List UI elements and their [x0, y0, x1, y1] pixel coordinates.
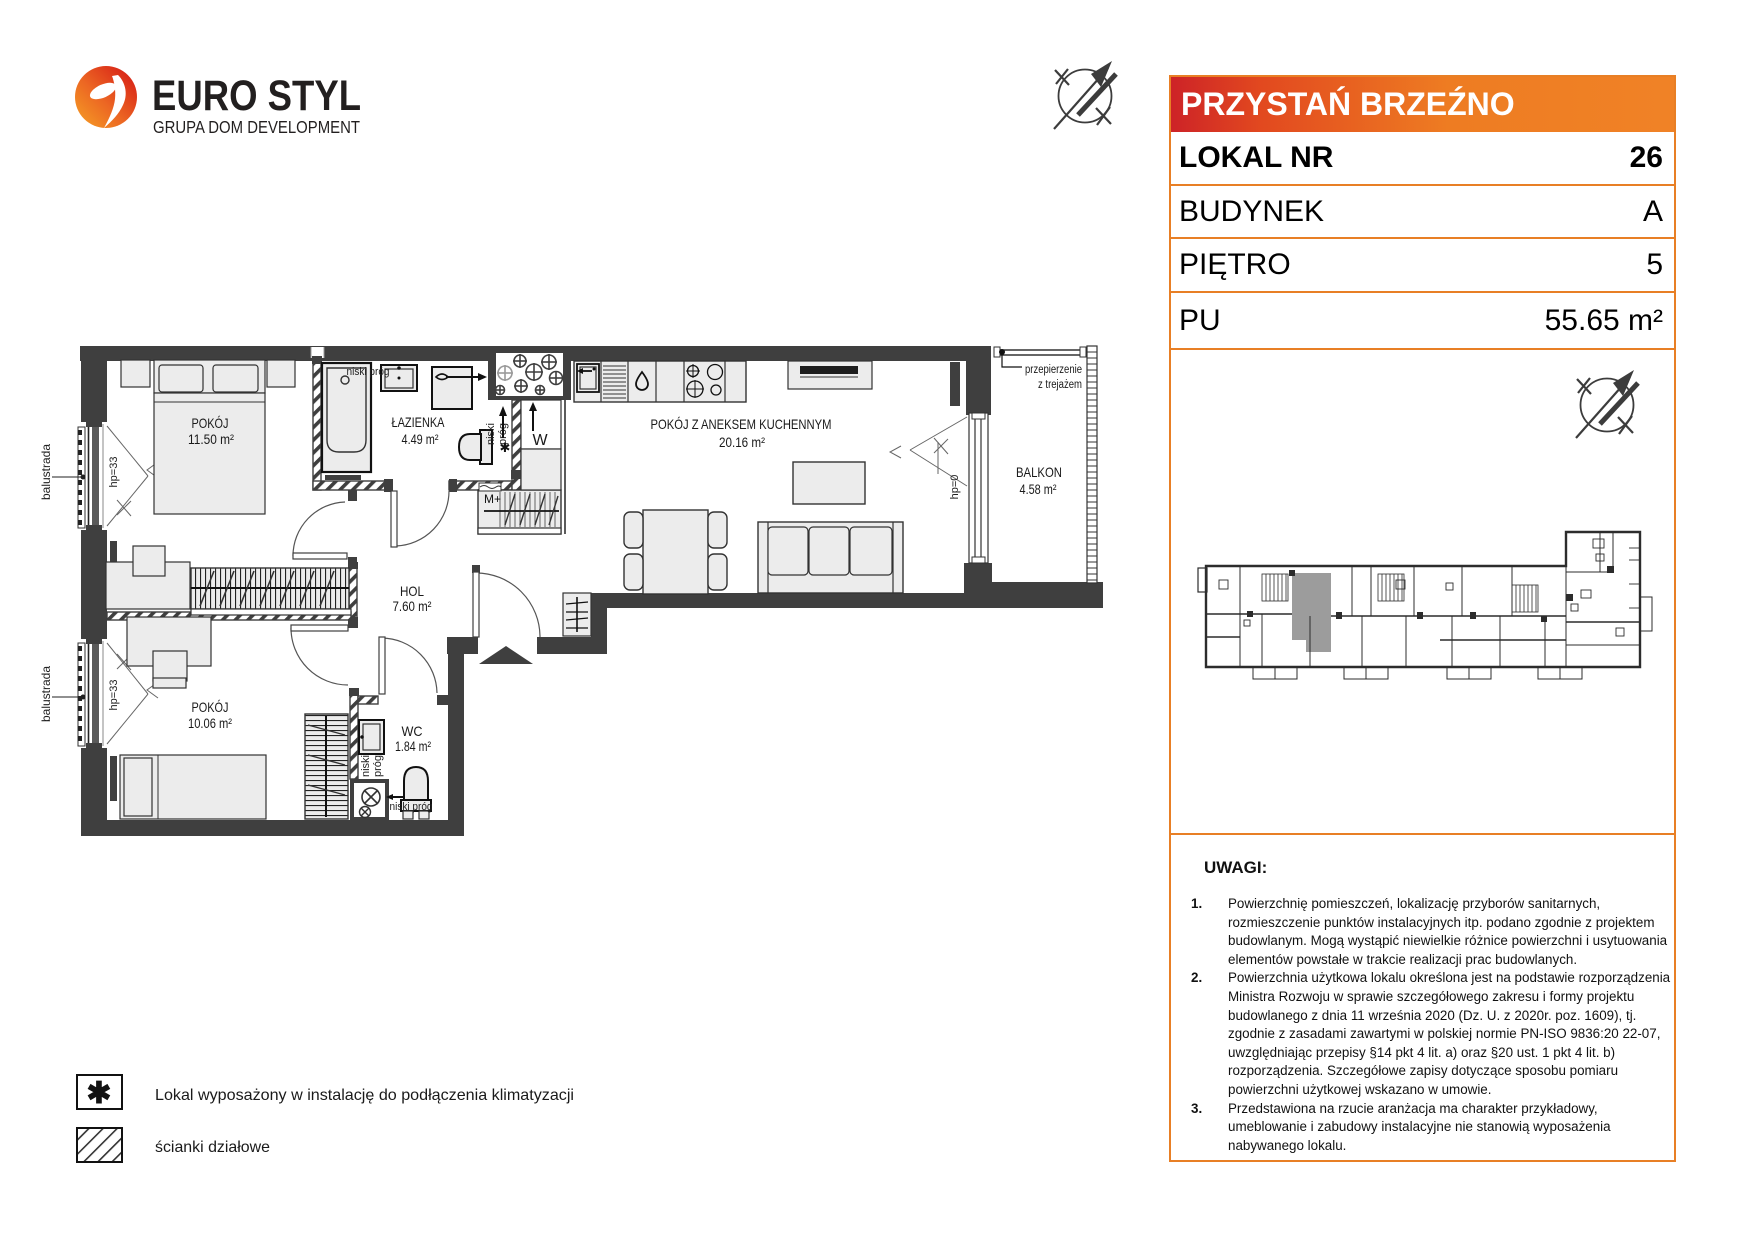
svg-text:7.60 m²: 7.60 m²: [393, 598, 432, 614]
svg-text:z trejażem: z trejażem: [1038, 379, 1082, 391]
svg-text:HOL: HOL: [400, 583, 424, 599]
svg-text:BALKON: BALKON: [1016, 464, 1062, 480]
svg-text:niski: niski: [485, 423, 497, 445]
svg-text:W: W: [532, 432, 548, 449]
svg-text:10.06 m²: 10.06 m²: [188, 715, 232, 731]
svg-text:POKÓJ: POKÓJ: [192, 699, 229, 715]
svg-text:hp=33: hp=33: [108, 457, 120, 488]
svg-text:4.58 m²: 4.58 m²: [1020, 481, 1057, 497]
svg-text:hp=0: hp=0: [949, 475, 961, 500]
svg-text:Lokal wyposażony w instalację: Lokal wyposażony w instalację do podłącz…: [155, 1087, 574, 1104]
svg-text:ŁAZIENKA: ŁAZIENKA: [392, 414, 446, 430]
svg-text:próg: próg: [372, 755, 384, 777]
svg-text:4.49 m²: 4.49 m²: [402, 431, 439, 447]
svg-text:1.84 m²: 1.84 m²: [395, 738, 431, 754]
svg-text:niski: niski: [360, 755, 372, 777]
svg-text:ścianki działowe: ścianki działowe: [155, 1139, 270, 1156]
svg-text:balustrada: balustrada: [39, 666, 53, 722]
svg-text:hp=33: hp=33: [108, 680, 120, 711]
svg-text:20.16 m²: 20.16 m²: [719, 434, 765, 450]
svg-text:przepierzenie: przepierzenie: [1025, 364, 1082, 376]
svg-text:niski próg: niski próg: [390, 801, 433, 813]
svg-text:niski próg: niski próg: [347, 366, 390, 378]
svg-text:✱: ✱: [86, 1077, 111, 1110]
svg-text:✱: ✱: [500, 440, 511, 455]
svg-text:POKÓJ: POKÓJ: [192, 415, 229, 431]
svg-text:balustrada: balustrada: [39, 444, 53, 500]
svg-text:WC: WC: [402, 723, 423, 739]
svg-text:M+: M+: [484, 492, 501, 506]
svg-text:POKÓJ Z ANEKSEM KUCHENNYM: POKÓJ Z ANEKSEM KUCHENNYM: [651, 416, 832, 432]
svg-text:11.50 m²: 11.50 m²: [188, 431, 234, 447]
